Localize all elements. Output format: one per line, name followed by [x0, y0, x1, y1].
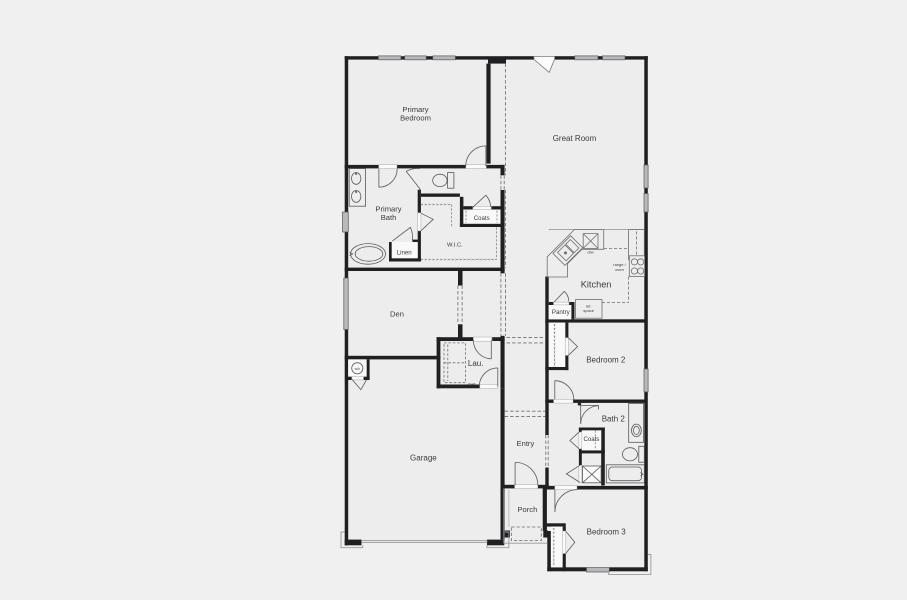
- svg-text:Bath 2: Bath 2: [602, 415, 626, 424]
- svg-text:Den: Den: [390, 310, 404, 319]
- svg-text:Bedroom 2: Bedroom 2: [586, 356, 626, 365]
- svg-text:Entry: Entry: [517, 439, 535, 448]
- svg-text:W.I.C.: W.I.C.: [447, 242, 463, 248]
- svg-text:d/w: d/w: [587, 250, 593, 255]
- svg-text:space: space: [583, 308, 594, 313]
- svg-text:Linen: Linen: [397, 250, 412, 257]
- svg-text:Bedroom: Bedroom: [400, 114, 431, 123]
- svg-text:Pantry: Pantry: [552, 309, 571, 316]
- svg-text:Coats: Coats: [583, 436, 599, 443]
- svg-text:Garage: Garage: [410, 454, 437, 463]
- svg-text:Great Room: Great Room: [553, 134, 597, 143]
- svg-text:Bath: Bath: [381, 213, 397, 222]
- svg-text:Porch: Porch: [517, 505, 537, 514]
- svg-text:Lau.: Lau.: [468, 359, 484, 368]
- svg-text:Coats: Coats: [474, 215, 490, 222]
- svg-text:shelf: shelf: [468, 383, 476, 387]
- svg-text:oven: oven: [615, 267, 624, 272]
- svg-text:w/h: w/h: [355, 367, 360, 371]
- svg-text:Kitchen: Kitchen: [581, 279, 612, 289]
- svg-text:Bedroom 3: Bedroom 3: [587, 527, 627, 536]
